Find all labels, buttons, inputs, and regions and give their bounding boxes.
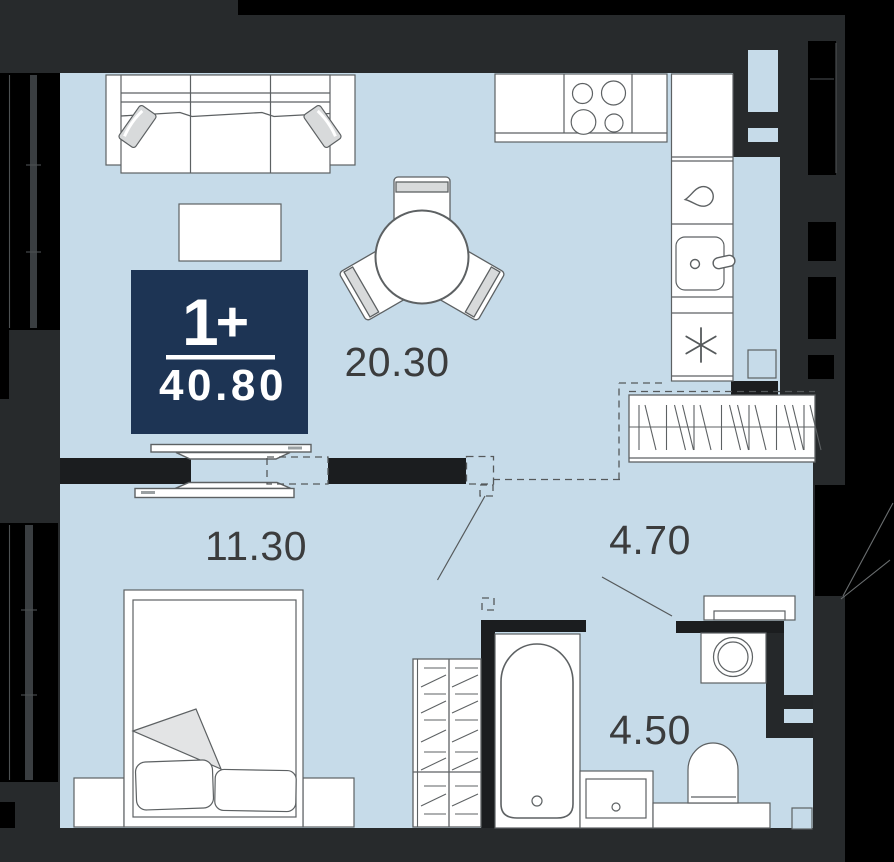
svg-text:40.80: 40.80: [159, 361, 287, 410]
svg-text:11.30: 11.30: [205, 523, 307, 569]
svg-text:20.30: 20.30: [344, 339, 449, 385]
svg-text:4.70: 4.70: [609, 517, 691, 563]
svg-text:4.50: 4.50: [609, 707, 691, 753]
svg-text:1+: 1+: [182, 285, 247, 359]
